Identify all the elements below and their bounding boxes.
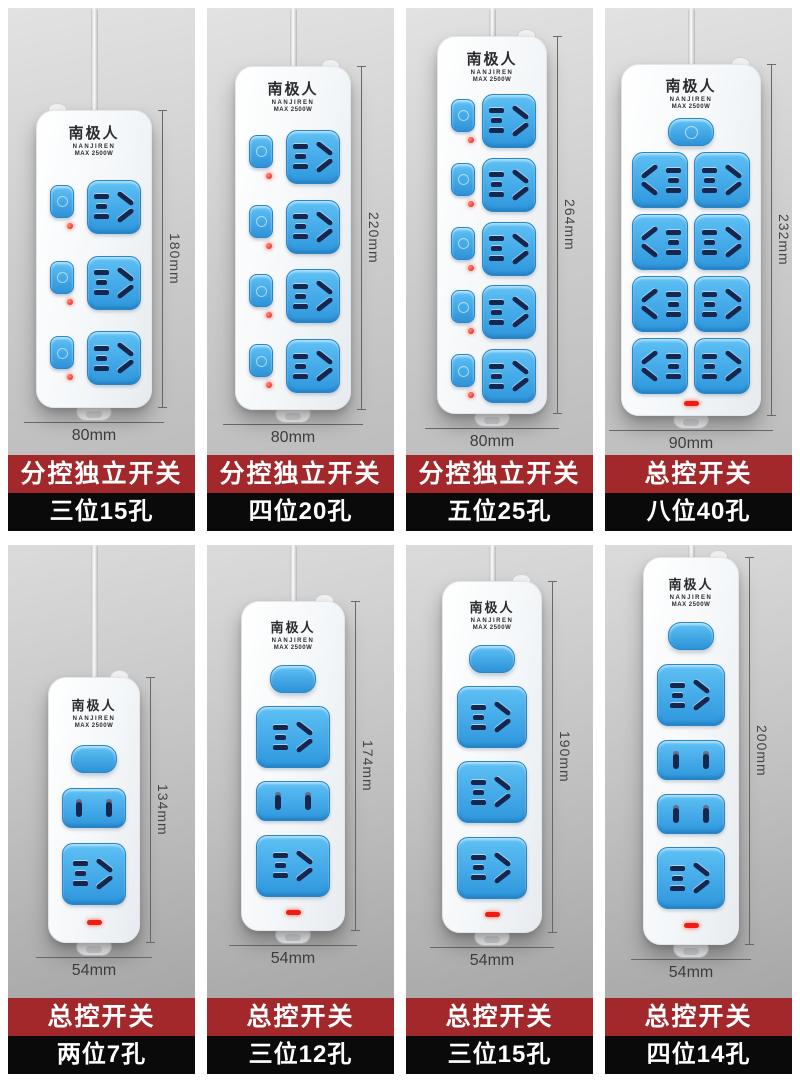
socket-hole <box>315 210 333 226</box>
brand-latin: NANJIREN <box>665 97 716 104</box>
socket-diagonal-holes <box>511 365 530 387</box>
spec-banner: 三位15孔 <box>406 1036 593 1074</box>
socket-hole <box>273 745 288 750</box>
socket-flat-holes <box>94 346 109 371</box>
height-dimension-line <box>150 677 151 943</box>
socket-hole <box>275 792 281 810</box>
product-stage: 南极人NANJIRENMAX 2500W232mm90mm <box>605 8 792 455</box>
socket-5hole <box>286 339 340 393</box>
socket-5hole <box>62 843 127 905</box>
socket-5hole <box>694 276 750 332</box>
socket-hole <box>94 214 109 219</box>
power-indicator-dot <box>468 265 474 271</box>
width-dimension: 80mm <box>223 424 363 447</box>
width-dimension: 54mm <box>36 957 152 980</box>
socket-5hole <box>256 706 329 768</box>
socket-hole <box>315 280 333 296</box>
power-indicator-dot <box>266 312 272 318</box>
width-dimension-line <box>229 945 357 946</box>
socket-flat-holes <box>73 861 88 886</box>
individual-switch <box>249 135 273 168</box>
brand-logo: 南极人NANJIRENMAX 2500W <box>68 125 119 158</box>
socket-diagonal-holes <box>640 293 659 315</box>
brand-max-power: MAX 2500W <box>71 723 116 730</box>
socket-hole <box>702 354 717 359</box>
socket-hole <box>295 294 306 299</box>
socket-hole <box>116 207 134 223</box>
socket-diagonal-holes <box>493 857 512 879</box>
width-dimension-line <box>24 422 164 423</box>
product-cell: 南极人NANJIRENMAX 2500W232mm90mm总控开关八位40孔 <box>605 8 792 531</box>
socket-hole <box>489 128 504 133</box>
width-dimension-line <box>430 947 554 948</box>
switch-type-banner: 总控开关 <box>207 998 394 1036</box>
socket-5hole <box>657 664 725 726</box>
socket-hole <box>491 118 502 123</box>
product-grid: 南极人NANJIRENMAX 2500W180mm80mm分控独立开关三位15孔… <box>8 8 792 1074</box>
product-stage: 南极人NANJIRENMAX 2500W190mm54mm <box>406 545 593 998</box>
socket-hole <box>666 168 681 173</box>
socket-hole <box>94 270 109 275</box>
socket-5hole <box>286 200 340 254</box>
socket-hole <box>724 305 742 321</box>
socket-hole <box>693 879 711 895</box>
socket-row <box>438 158 546 212</box>
socket-hole <box>116 359 134 375</box>
socket-hole <box>315 350 333 366</box>
width-dimension-label: 54mm <box>631 964 751 982</box>
switch-column <box>451 290 475 334</box>
height-dimension: 220mm <box>361 66 382 410</box>
socket-hole <box>668 240 679 245</box>
socket-hole <box>94 194 109 199</box>
socket-hole <box>666 250 681 255</box>
socket-hole <box>489 384 504 389</box>
height-dimension: 190mm <box>552 581 573 933</box>
individual-switch <box>50 336 74 369</box>
socket-hole <box>489 108 504 113</box>
individual-switch <box>249 344 273 377</box>
socket-5hole <box>694 152 750 208</box>
power-indicator-dot <box>468 328 474 334</box>
switch-type-banner: 分控独立开关 <box>207 455 394 493</box>
socket-2hole <box>62 788 127 828</box>
height-dimension-label: 200mm <box>754 725 770 777</box>
socket-hole <box>494 793 512 809</box>
power-indicator-light <box>286 910 301 915</box>
socket-hole <box>275 735 286 740</box>
socket-row <box>438 94 546 148</box>
socket-hole <box>75 871 86 876</box>
socket-hole <box>702 250 717 255</box>
socket-5hole <box>457 837 528 899</box>
socket-5hole <box>632 338 688 394</box>
socket-hole <box>473 790 484 795</box>
socket-flat-holes <box>666 230 681 255</box>
socket-hole <box>295 154 306 159</box>
width-dimension-line <box>223 424 363 425</box>
spec-banner: 四位14孔 <box>605 1036 792 1074</box>
socket-hole <box>724 350 742 366</box>
socket-flat-holes <box>670 866 685 891</box>
socket-5hole <box>87 256 141 310</box>
power-strip: 南极人NANJIRENMAX 2500W <box>48 677 140 943</box>
brand-logo: 南极人NANJIRENMAX 2500W <box>466 51 517 84</box>
width-dimension-label: 54mm <box>229 950 357 968</box>
socket-diagonal-holes <box>116 272 135 294</box>
socket-row <box>236 269 350 323</box>
brand-name: 南极人 <box>668 578 713 593</box>
socket-5hole <box>256 835 329 897</box>
socket-flat-holes <box>293 214 308 239</box>
switch-column <box>50 336 74 380</box>
socket-diagonal-holes <box>724 231 743 253</box>
socket-5hole <box>694 338 750 394</box>
socket-5hole <box>632 214 688 270</box>
socket-flat-holes <box>471 855 486 880</box>
socket-diagonal-holes <box>511 110 530 132</box>
socket-hole <box>702 188 717 193</box>
socket-hole <box>96 280 107 285</box>
socket-hole <box>511 232 529 248</box>
brand-max-power: MAX 2500W <box>466 77 517 84</box>
socket-diagonal-holes <box>315 146 334 168</box>
socket-hole <box>94 346 109 351</box>
socket-hole <box>511 168 529 184</box>
brand-latin: NANJIREN <box>71 716 116 723</box>
socket-hole <box>473 865 484 870</box>
socket-hole <box>295 866 313 882</box>
switch-type-banner: 总控开关 <box>406 998 593 1036</box>
socket-flat-holes <box>489 108 504 133</box>
height-dimension-label: 134mm <box>155 784 171 836</box>
width-dimension: 54mm <box>430 947 554 970</box>
socket-hole <box>116 190 134 206</box>
power-strip: 南极人NANJIRENMAX 2500W <box>36 110 152 408</box>
brand-latin: NANJIREN <box>466 70 517 77</box>
socket-diagonal-holes <box>315 285 334 307</box>
socket-rows <box>438 84 546 413</box>
socket-hole <box>489 320 504 325</box>
power-indicator-dot <box>266 173 272 179</box>
socket-flat-holes <box>273 853 288 878</box>
product-cell: 南极人NANJIRENMAX 2500W190mm54mm总控开关三位15孔 <box>406 545 593 1074</box>
socket-hole <box>273 873 288 878</box>
socket-hole <box>116 266 134 282</box>
power-indicator-dot <box>468 137 474 143</box>
socket-flat-holes <box>471 705 486 730</box>
socket-row <box>37 331 151 385</box>
socket-5hole <box>482 285 536 339</box>
socket-flat-holes <box>702 168 717 193</box>
socket-hole <box>702 312 717 317</box>
socket-hole <box>275 863 286 868</box>
socket-hole <box>494 776 512 792</box>
socket-diagonal-holes <box>724 355 743 377</box>
width-dimension-line <box>631 959 751 960</box>
socket-hole <box>471 725 486 730</box>
spec-banner: 两位7孔 <box>8 1036 195 1074</box>
socket-5hole <box>657 847 725 909</box>
individual-switch <box>451 163 475 196</box>
socket-hole <box>315 227 333 243</box>
socket-hole <box>673 805 679 823</box>
socket-diagonal-holes <box>295 855 314 877</box>
product-stage: 南极人NANJIRENMAX 2500W200mm54mm <box>605 545 792 998</box>
socket-hole <box>704 240 715 245</box>
power-strip: 南极人NANJIRENMAX 2500W <box>621 64 761 416</box>
brand-max-power: MAX 2500W <box>270 645 315 652</box>
height-dimension-line <box>749 557 750 945</box>
socket-hole <box>640 305 658 321</box>
socket-hole <box>704 178 715 183</box>
socket-hole <box>704 364 715 369</box>
spec-banner: 四位20孔 <box>207 493 394 531</box>
socket-hole <box>640 226 658 242</box>
socket-row <box>37 180 151 234</box>
socket-hole <box>511 105 529 121</box>
socket-hole <box>511 360 529 376</box>
width-dimension-label: 80mm <box>24 427 164 445</box>
height-dimension-line <box>552 581 553 933</box>
socket-5hole <box>482 94 536 148</box>
socket-5hole <box>457 686 528 748</box>
socket-hole <box>315 157 333 173</box>
socket-hole <box>96 875 114 891</box>
brand-max-power: MAX 2500W <box>469 625 514 632</box>
socket-hole <box>491 246 502 251</box>
socket-hole <box>640 288 658 304</box>
socket-2hole <box>256 781 329 821</box>
power-indicator-light <box>87 920 102 925</box>
power-indicator-dot <box>266 243 272 249</box>
socket-hole <box>673 751 679 769</box>
switch-type-banner: 总控开关 <box>605 455 792 493</box>
socket-hole <box>640 243 658 259</box>
socket-hole <box>293 214 308 219</box>
hang-tail-notch <box>86 946 102 953</box>
socket-grid <box>632 152 750 394</box>
socket-flat-holes <box>94 270 109 295</box>
socket-row <box>438 285 546 339</box>
power-strip: 南极人NANJIRENMAX 2500W <box>235 66 351 410</box>
spec-banner: 八位40孔 <box>605 493 792 531</box>
switch-column <box>249 135 273 179</box>
brand-name: 南极人 <box>68 125 119 142</box>
socket-row <box>37 256 151 310</box>
power-indicator-dot <box>468 392 474 398</box>
socket-hole <box>640 350 658 366</box>
socket-hole <box>702 168 717 173</box>
socket-flat-holes <box>666 168 681 193</box>
socket-diagonal-holes <box>640 231 659 253</box>
socket-flat-holes <box>471 780 486 805</box>
brand-name: 南极人 <box>270 621 315 636</box>
socket-5hole <box>87 180 141 234</box>
socket-hole <box>295 738 313 754</box>
socket-hole <box>724 367 742 383</box>
socket-flat-holes <box>666 354 681 379</box>
socket-hole <box>724 164 742 180</box>
socket-rows <box>37 158 151 407</box>
socket-hole <box>511 122 529 138</box>
switch-column <box>249 205 273 249</box>
socket-hole <box>703 805 709 823</box>
socket-hole <box>315 140 333 156</box>
width-dimension: 54mm <box>229 945 357 968</box>
socket-hole <box>293 284 308 289</box>
socket-flat-holes <box>702 292 717 317</box>
socket-hole <box>666 374 681 379</box>
individual-switch <box>50 261 74 294</box>
brand-max-power: MAX 2500W <box>267 107 318 114</box>
height-dimension-label: 264mm <box>562 199 578 251</box>
socket-hole <box>94 366 109 371</box>
height-dimension-label: 174mm <box>360 740 376 792</box>
socket-hole <box>491 374 502 379</box>
width-dimension-label: 80mm <box>425 433 559 451</box>
height-dimension: 174mm <box>355 601 376 931</box>
socket-hole <box>295 364 306 369</box>
socket-diagonal-holes <box>692 684 711 706</box>
power-strip: 南极人NANJIRENMAX 2500W <box>241 601 345 931</box>
socket-hole <box>511 377 529 393</box>
brand-latin: NANJIREN <box>668 595 713 602</box>
individual-switch <box>451 290 475 323</box>
product-cell: 南极人NANJIRENMAX 2500W200mm54mm总控开关四位14孔 <box>605 545 792 1074</box>
socket-hole <box>471 780 486 785</box>
master-switch <box>668 118 714 146</box>
socket-hole <box>106 799 112 817</box>
socket-hole <box>315 367 333 383</box>
socket-5hole <box>482 158 536 212</box>
individual-switch <box>249 274 273 307</box>
socket-hole <box>273 725 288 730</box>
socket-hole <box>672 876 683 881</box>
socket-hole <box>670 683 685 688</box>
socket-hole <box>293 144 308 149</box>
height-dimension-label: 232mm <box>776 214 792 266</box>
hang-tail-notch <box>285 413 301 420</box>
master-switch <box>668 622 714 650</box>
socket-hole <box>489 236 504 241</box>
socket-hole <box>666 312 681 317</box>
height-dimension: 232mm <box>771 64 792 416</box>
socket-hole <box>724 226 742 242</box>
socket-hole <box>702 230 717 235</box>
socket-flat-holes <box>293 144 308 169</box>
socket-hole <box>293 234 308 239</box>
socket-5hole <box>694 214 750 270</box>
width-dimension-line <box>609 430 773 431</box>
brand-name: 南极人 <box>267 81 318 98</box>
product-cell: 南极人NANJIRENMAX 2500W174mm54mm总控开关三位12孔 <box>207 545 394 1074</box>
socket-hole <box>305 792 311 810</box>
socket-diagonal-holes <box>724 169 743 191</box>
socket-flat-holes <box>702 230 717 255</box>
brand-logo: 南极人NANJIRENMAX 2500W <box>71 699 116 730</box>
brand-logo: 南极人NANJIRENMAX 2500W <box>668 578 713 609</box>
height-dimension: 134mm <box>150 677 171 943</box>
brand-latin: NANJIREN <box>267 100 318 107</box>
socket-hole <box>693 862 711 878</box>
socket-flat-holes <box>94 194 109 219</box>
socket-flat-holes <box>489 236 504 261</box>
height-dimension-line <box>557 36 558 414</box>
socket-diagonal-holes <box>315 216 334 238</box>
master-switch <box>469 645 515 673</box>
socket-hole <box>494 718 512 734</box>
socket-hole <box>293 354 308 359</box>
switch-column <box>451 163 475 207</box>
brand-name: 南极人 <box>466 51 517 68</box>
socket-hole <box>489 364 504 369</box>
power-indicator-dot <box>468 201 474 207</box>
socket-hole <box>670 703 685 708</box>
switch-column <box>451 227 475 271</box>
individual-switch <box>249 205 273 238</box>
socket-hole <box>96 204 107 209</box>
socket-hole <box>666 230 681 235</box>
power-cord <box>91 8 98 116</box>
brand-latin: NANJIREN <box>68 144 119 151</box>
socket-5hole <box>87 331 141 385</box>
socket-hole <box>494 701 512 717</box>
socket-diagonal-holes <box>315 355 334 377</box>
socket-hole <box>724 181 742 197</box>
socket-diagonal-holes <box>493 706 512 728</box>
socket-diagonal-holes <box>640 169 659 191</box>
brand-max-power: MAX 2500W <box>68 151 119 158</box>
width-dimension-label: 90mm <box>609 435 773 453</box>
socket-hole <box>473 715 484 720</box>
socket-diagonal-holes <box>116 196 135 218</box>
socket-5hole <box>482 222 536 276</box>
product-cell: 南极人NANJIRENMAX 2500W264mm80mm分控独立开关五位25孔 <box>406 8 593 531</box>
hang-tail-notch <box>683 948 699 955</box>
socket-hole <box>273 853 288 858</box>
socket-hole <box>293 304 308 309</box>
brand-logo: 南极人NANJIRENMAX 2500W <box>270 621 315 652</box>
brand-latin: NANJIREN <box>469 618 514 625</box>
master-switch <box>270 665 316 693</box>
socket-hole <box>315 297 333 313</box>
power-indicator-dot <box>67 299 73 305</box>
socket-flat-holes <box>293 284 308 309</box>
socket-5hole <box>286 130 340 184</box>
socket-diagonal-holes <box>724 293 743 315</box>
brand-max-power: MAX 2500W <box>665 104 716 111</box>
width-dimension-line <box>36 957 152 958</box>
power-strip: 南极人NANJIRENMAX 2500W <box>643 557 739 945</box>
socket-hole <box>489 300 504 305</box>
switch-type-banner: 分控独立开关 <box>406 455 593 493</box>
width-dimension: 90mm <box>609 430 773 453</box>
height-dimension-label: 190mm <box>557 731 573 783</box>
socket-5hole <box>286 269 340 323</box>
switch-column <box>451 354 475 398</box>
socket-hole <box>491 182 502 187</box>
socket-hole <box>702 374 717 379</box>
socket-rows <box>236 114 350 409</box>
socket-hole <box>471 855 486 860</box>
socket-hole <box>704 302 715 307</box>
socket-diagonal-holes <box>95 863 114 885</box>
socket-2hole <box>657 794 725 834</box>
individual-switch <box>451 227 475 260</box>
socket-hole <box>693 679 711 695</box>
power-indicator-light <box>485 912 500 917</box>
